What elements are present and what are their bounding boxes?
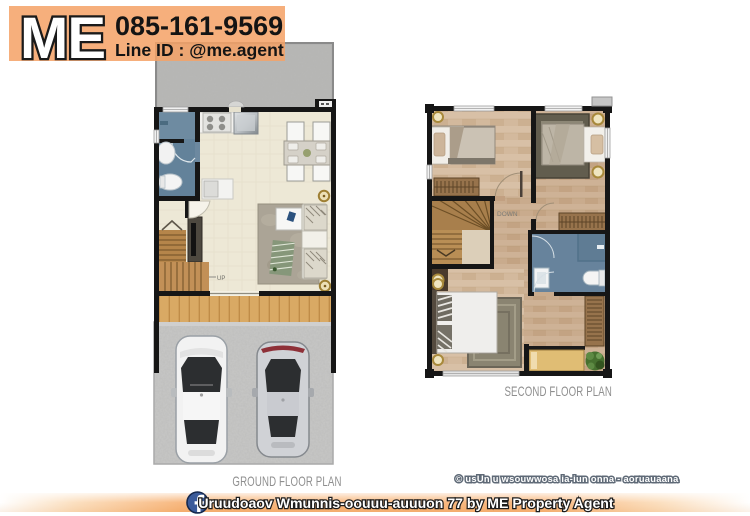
svg-text:DOWN: DOWN xyxy=(497,211,518,218)
svg-text:Uruudoaov Wmunnis-oouuu-auuuon: Uruudoaov Wmunnis-oouuu-auuuon 77 by ME … xyxy=(198,495,614,511)
svg-text:Line ID : @me.agent: Line ID : @me.agent xyxy=(115,40,284,60)
svg-text:© usUn u wsouwwosa ia-iun onna: © usUn u wsouwwosa ia-iun onna - aoruaua… xyxy=(455,474,679,484)
svg-text:ME: ME xyxy=(20,6,105,71)
svg-text:UP: UP xyxy=(217,276,225,282)
svg-text:SECOND FLOOR PLAN: SECOND FLOOR PLAN xyxy=(504,383,612,399)
svg-text:085-161-9569: 085-161-9569 xyxy=(115,11,283,41)
svg-text:GROUND FLOOR PLAN: GROUND FLOOR PLAN xyxy=(232,473,341,489)
